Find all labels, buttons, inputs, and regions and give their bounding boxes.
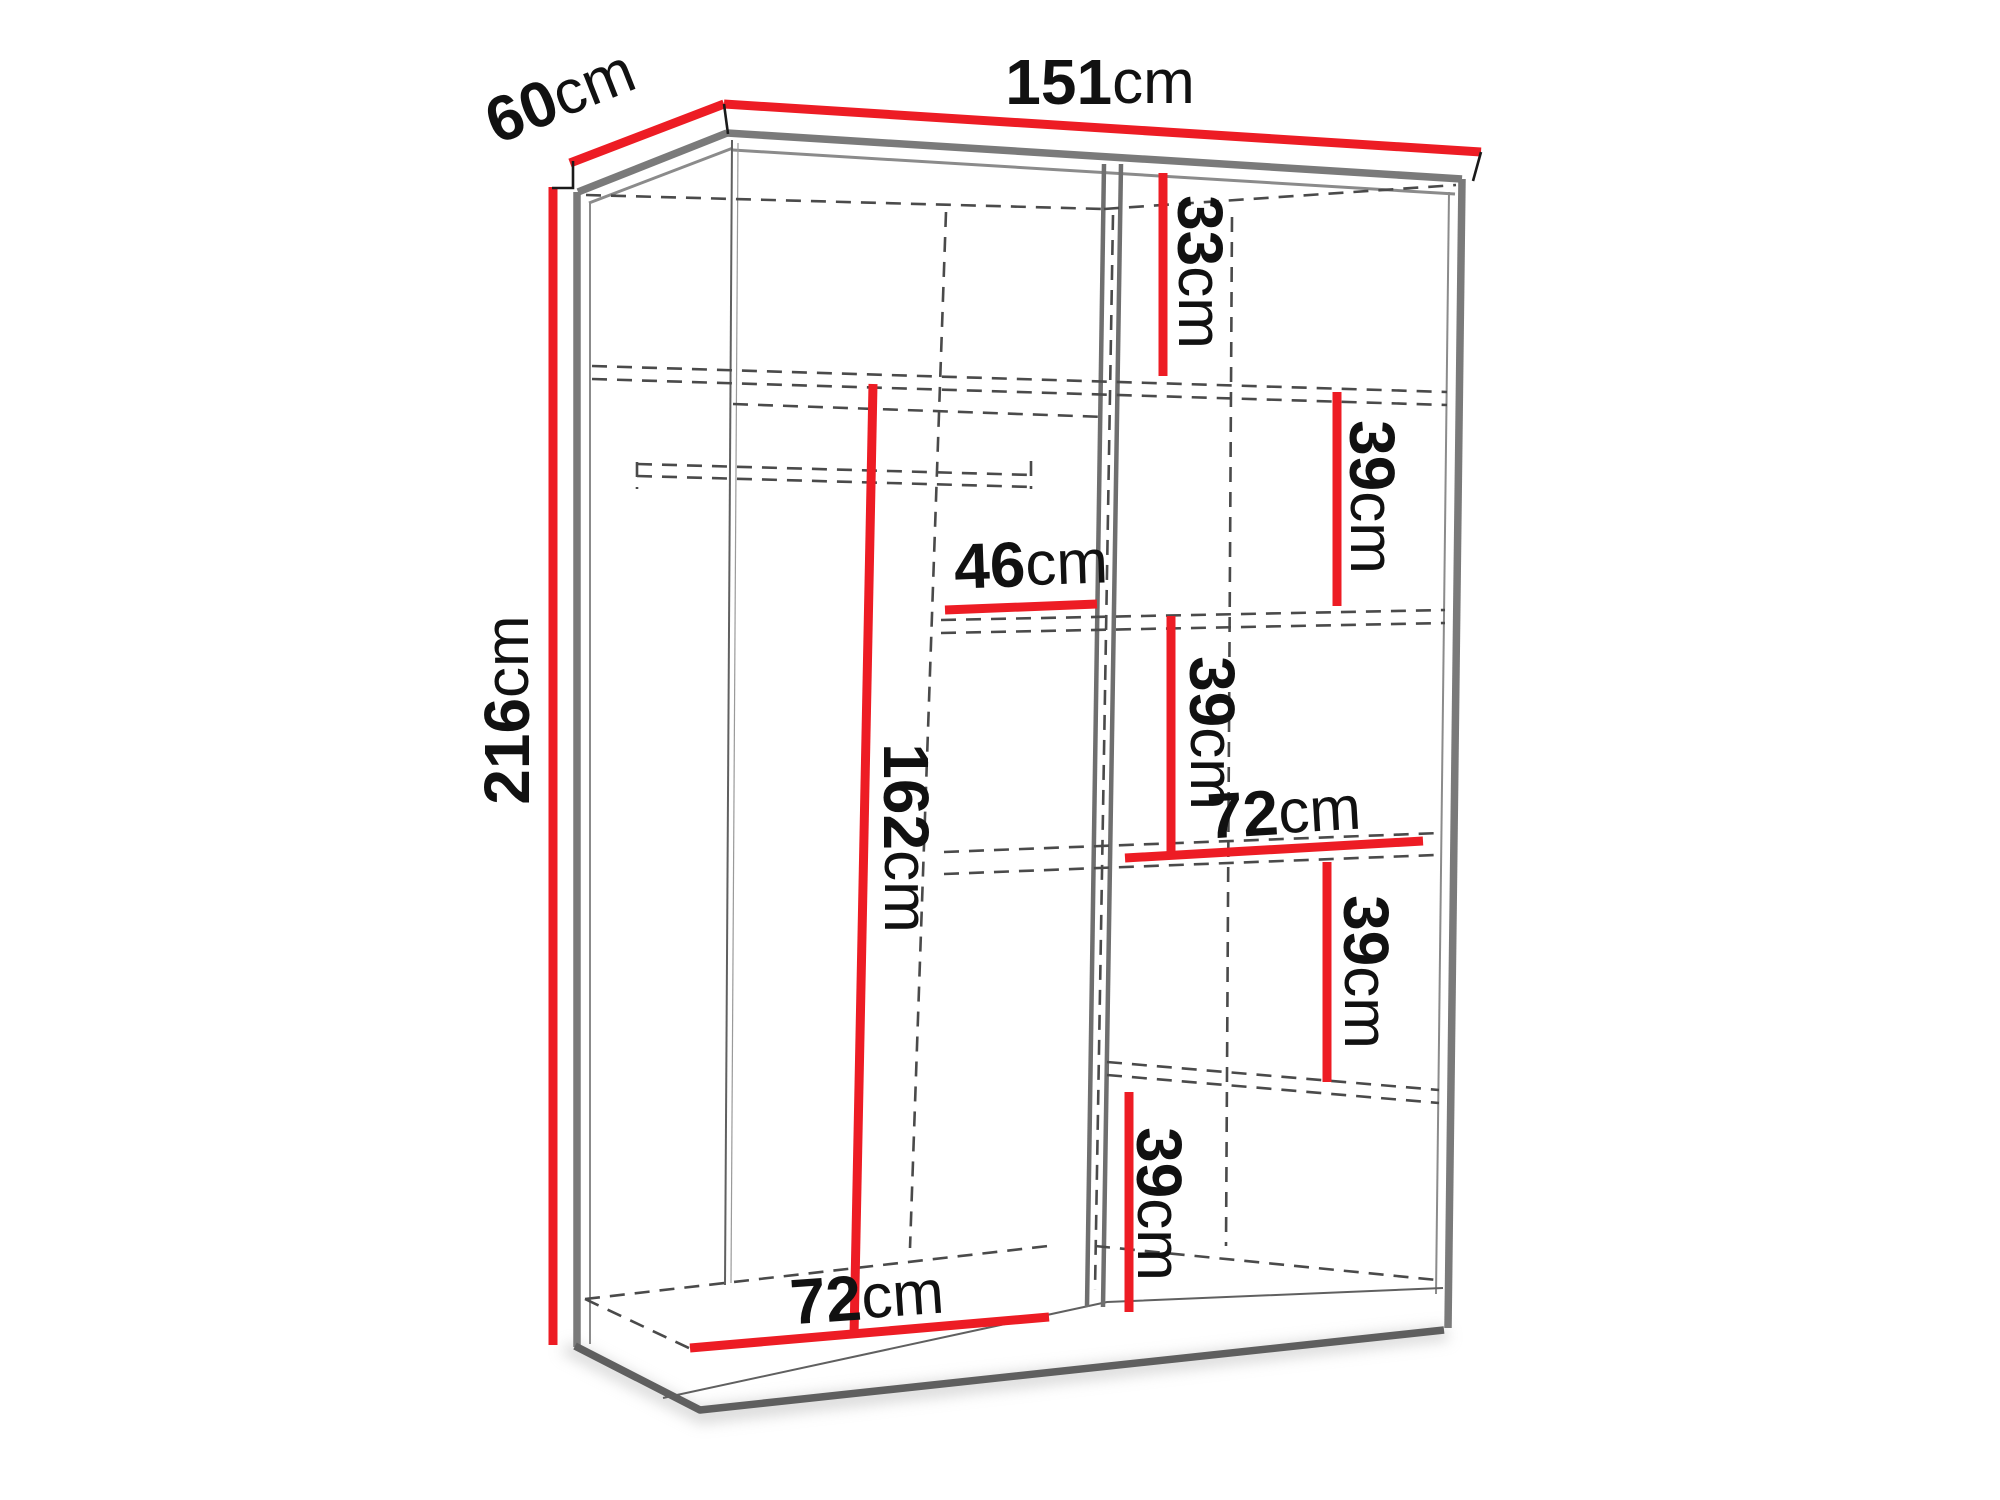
dim-gap-39-upper-right: 39cm xyxy=(1336,420,1408,574)
dim-width-72-right: 72cm xyxy=(1205,772,1363,853)
hanging-rail-top xyxy=(637,464,1033,475)
wardrobe-outline xyxy=(575,133,1462,1410)
hanging-rail-bottom xyxy=(637,476,1033,487)
dim-gap-39-bottom: 39cm xyxy=(1123,1127,1195,1281)
dim-height-162: 162cm xyxy=(870,743,942,932)
back-top-edge-right xyxy=(1104,185,1456,209)
wardrobe-dimension-diagram: 151cm 60cm 216cm 33cm 39cm 46cm 39cm 162… xyxy=(0,0,2000,1500)
center-partition-left xyxy=(1087,164,1104,1307)
shelf1-bottom-edge xyxy=(592,379,1447,405)
bottom-edge xyxy=(575,1330,1444,1410)
shelf4-bottom-edge xyxy=(1107,1075,1439,1103)
dim-depth-60: 60cm xyxy=(475,34,645,157)
dim-height-216: 216cm xyxy=(471,615,543,804)
dimension-labels: 151cm 60cm 216cm 33cm 39cm 46cm 39cm 162… xyxy=(471,34,1408,1338)
shelf1-front-edge xyxy=(592,366,1447,392)
dimension-lines xyxy=(552,104,1481,1348)
side-top-edge xyxy=(578,133,727,192)
floor-side-edge-left xyxy=(585,1299,693,1350)
hidden-lines xyxy=(585,185,1456,1350)
shelf2-bottom-edge xyxy=(941,623,1445,633)
shelf4-front-edge xyxy=(1107,1062,1439,1090)
center-partition-right xyxy=(1103,164,1121,1307)
dimension-line-162 xyxy=(854,384,873,1336)
dim-gap-33: 33cm xyxy=(1164,195,1236,349)
dimension-line-46 xyxy=(945,604,1097,610)
shelf1-back-edge xyxy=(733,404,1105,417)
dim-width-72-left: 72cm xyxy=(788,1256,946,1339)
back-left-corner xyxy=(725,140,732,1285)
middle-column-divider xyxy=(910,212,946,1248)
extension-tick-top-left xyxy=(552,161,573,188)
diagram-canvas: 151cm 60cm 216cm 33cm 39cm 46cm 39cm 162… xyxy=(0,0,2000,1500)
extension-tick-top-right xyxy=(1473,152,1481,181)
dim-width-46: 46cm xyxy=(953,525,1109,602)
dim-width-151: 151cm xyxy=(1005,46,1194,118)
back-left-corner-inner xyxy=(731,143,738,1283)
right-edge xyxy=(1448,179,1462,1328)
back-top-edge-left xyxy=(586,195,1104,209)
dim-gap-39-lower-right: 39cm xyxy=(1330,895,1402,1049)
